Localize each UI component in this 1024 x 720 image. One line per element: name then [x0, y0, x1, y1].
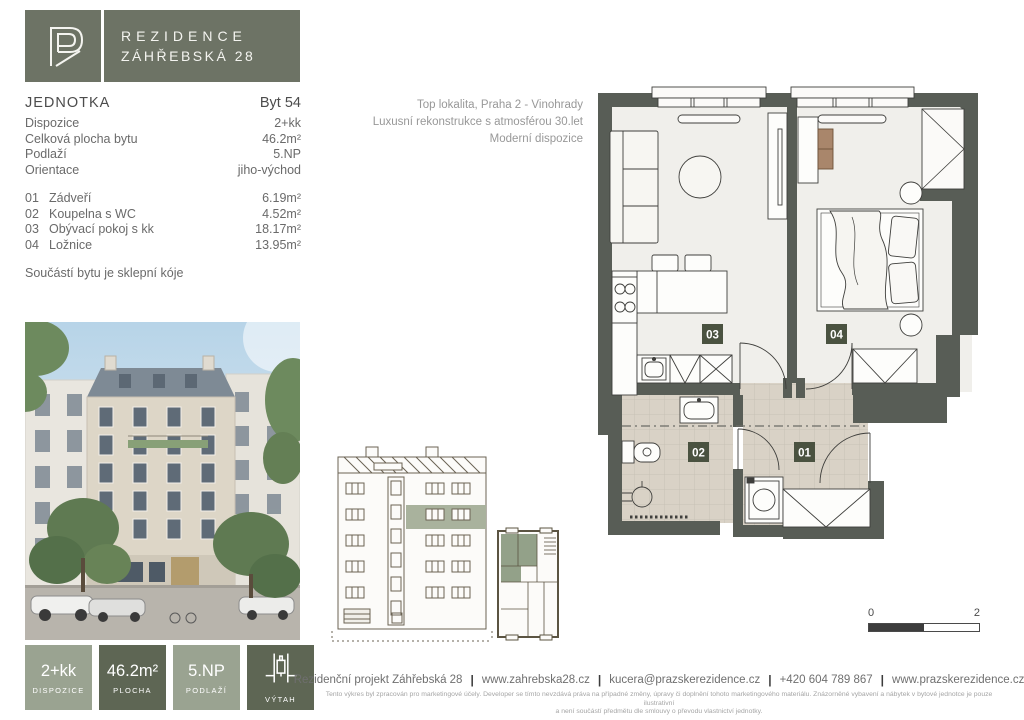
footer-separator: |	[598, 673, 601, 687]
toilet	[622, 441, 660, 463]
footer-website-2: www.prazskerezidence.cz	[892, 674, 1024, 686]
brand-line2: ZÁHŘEBSKÁ 28	[121, 46, 300, 66]
flyer-page: REZIDENCE ZÁHŘEBSKÁ 28 JEDNOTKA Byt 54 D…	[0, 0, 1024, 720]
brand-banner: REZIDENCE ZÁHŘEBSKÁ 28	[104, 10, 300, 82]
info-label: Orientace	[25, 163, 79, 179]
info-label: Dispozice	[25, 116, 79, 132]
room-number: 04	[25, 238, 49, 254]
scale-end: 2	[974, 606, 980, 620]
highlight-line: Moderní dispozice	[350, 131, 583, 148]
floor-plan-drawing: 03 04 02 01	[590, 85, 990, 545]
footer-phone: +420 604 789 867	[780, 674, 873, 686]
info-row: Celková plocha bytu 46.2m²	[25, 132, 301, 148]
tall-cabinet	[768, 113, 787, 219]
highlight-line: Luxusní rekonstrukce s atmosférou 30.let	[350, 114, 583, 131]
unit-info: JEDNOTKA Byt 54 Dispozice 2+kk Celková p…	[25, 94, 301, 280]
bedroom-wardrobe	[798, 117, 818, 183]
room-area: 18.17m²	[255, 222, 301, 238]
info-value: jiho-východ	[238, 163, 301, 179]
info-value: 5.NP	[273, 147, 301, 163]
bathroom-sink	[680, 397, 718, 423]
badge-value: 46.2m²	[107, 661, 158, 681]
info-row: Orientace jiho-východ	[25, 163, 301, 179]
unit-title-label: JEDNOTKA	[25, 94, 110, 112]
badge-value: 5.NP	[188, 661, 225, 681]
round-table	[679, 156, 721, 198]
pr-monogram-icon	[39, 22, 87, 70]
info-row: Dispozice 2+kk	[25, 116, 301, 132]
badge-dispozice: 2+kk DISPOZICE	[25, 645, 92, 710]
room-number: 03	[25, 222, 49, 238]
room-row: 04Ložnice 13.95m²	[25, 238, 301, 254]
badge-label: VÝTAH	[265, 695, 296, 704]
corner-closet	[922, 109, 964, 189]
room-row: 02Koupelna s WC 4.52m²	[25, 207, 301, 223]
building-photo	[25, 322, 300, 640]
badge-label: DISPOZICE	[32, 686, 84, 695]
disclaimer-line1: Tento výkres byl zpracován pro marketing…	[318, 691, 1000, 708]
room-name: Zádveří	[49, 191, 91, 207]
room-name: Koupelna s WC	[49, 207, 136, 223]
footer-email: kucera@prazskerezidence.cz	[609, 674, 760, 686]
highlight-line: Top lokalita, Praha 2 - Vinohrady	[350, 97, 583, 114]
floor-plan: 03 04 02 01	[590, 85, 990, 545]
footer-disclaimer: Tento výkres byl zpracován pro marketing…	[318, 691, 1000, 717]
floor-key-plan	[498, 528, 558, 640]
tag-01: 01	[798, 448, 811, 460]
badge-plocha: 46.2m² PLOCHA	[99, 645, 166, 710]
badge-podlazi: 5.NP PODLAŽÍ	[173, 645, 240, 710]
elevation-drawings	[330, 443, 562, 645]
washing-machine	[745, 477, 783, 523]
room-row: 01Zádveří 6.19m²	[25, 191, 301, 207]
dresser	[818, 129, 833, 169]
room-list: 01Zádveří 6.19m² 02Koupelna s WC 4.52m² …	[25, 191, 301, 253]
hall-wardrobe	[783, 489, 870, 527]
nightstand	[900, 314, 922, 336]
sofa	[610, 131, 658, 243]
nightstand	[900, 182, 922, 204]
scale-start: 0	[868, 606, 874, 620]
disclaimer-line2: a není součástí předmětu dle smlouvy o p…	[318, 708, 1000, 717]
room-number: 02	[25, 207, 49, 223]
scale-bar: 0 2	[868, 606, 980, 644]
footer: Rezidenční projekt Záhřebská 28 | www.za…	[318, 673, 1000, 717]
room-area: 13.95m²	[255, 238, 301, 254]
footer-separator: |	[881, 673, 884, 687]
badge-value: 2+kk	[41, 661, 76, 681]
brand-line1: REZIDENCE	[121, 26, 300, 46]
tag-02: 02	[692, 448, 705, 460]
bedroom-closet	[853, 349, 917, 383]
cellar-note: Součástí bytu je sklepní kóje	[25, 266, 301, 280]
facade-elevation-drawing	[330, 443, 562, 645]
scale-bar-track	[868, 623, 980, 632]
info-value: 46.2m²	[262, 132, 301, 148]
unit-title-row: JEDNOTKA Byt 54	[25, 94, 301, 112]
room-name: Obývací pokoj s kk	[49, 222, 154, 238]
info-label: Podlaží	[25, 147, 67, 163]
tag-03: 03	[706, 330, 719, 342]
footer-project-name: Rezidenční projekt Záhřebská 28	[294, 674, 463, 686]
footer-separator: |	[470, 673, 473, 687]
brand-logo	[25, 10, 101, 82]
elevator-icon	[264, 651, 298, 685]
footer-website: www.zahrebska28.cz	[482, 674, 590, 686]
tag-04: 04	[830, 330, 843, 342]
badge-label: PLOCHA	[113, 686, 152, 695]
room-area: 4.52m²	[262, 207, 301, 223]
marketing-highlights: Top lokalita, Praha 2 - Vinohrady Luxusn…	[350, 97, 583, 148]
room-number: 01	[25, 191, 49, 207]
pillow	[888, 216, 919, 259]
room-row: 03Obývací pokoj s kk 18.17m²	[25, 222, 301, 238]
room-name: Ložnice	[49, 238, 92, 254]
info-row: Podlaží 5.NP	[25, 147, 301, 163]
badge-label: PODLAŽÍ	[186, 686, 227, 695]
footer-separator: |	[768, 673, 771, 687]
building-render-image	[25, 322, 300, 640]
bed	[817, 209, 923, 311]
footer-contacts: Rezidenční projekt Záhřebská 28 | www.za…	[318, 673, 1000, 687]
pillow	[888, 262, 918, 304]
unit-title-value: Byt 54	[260, 94, 301, 112]
room-area: 6.19m²	[262, 191, 301, 207]
info-label: Celková plocha bytu	[25, 132, 138, 148]
info-value: 2+kk	[274, 116, 301, 132]
